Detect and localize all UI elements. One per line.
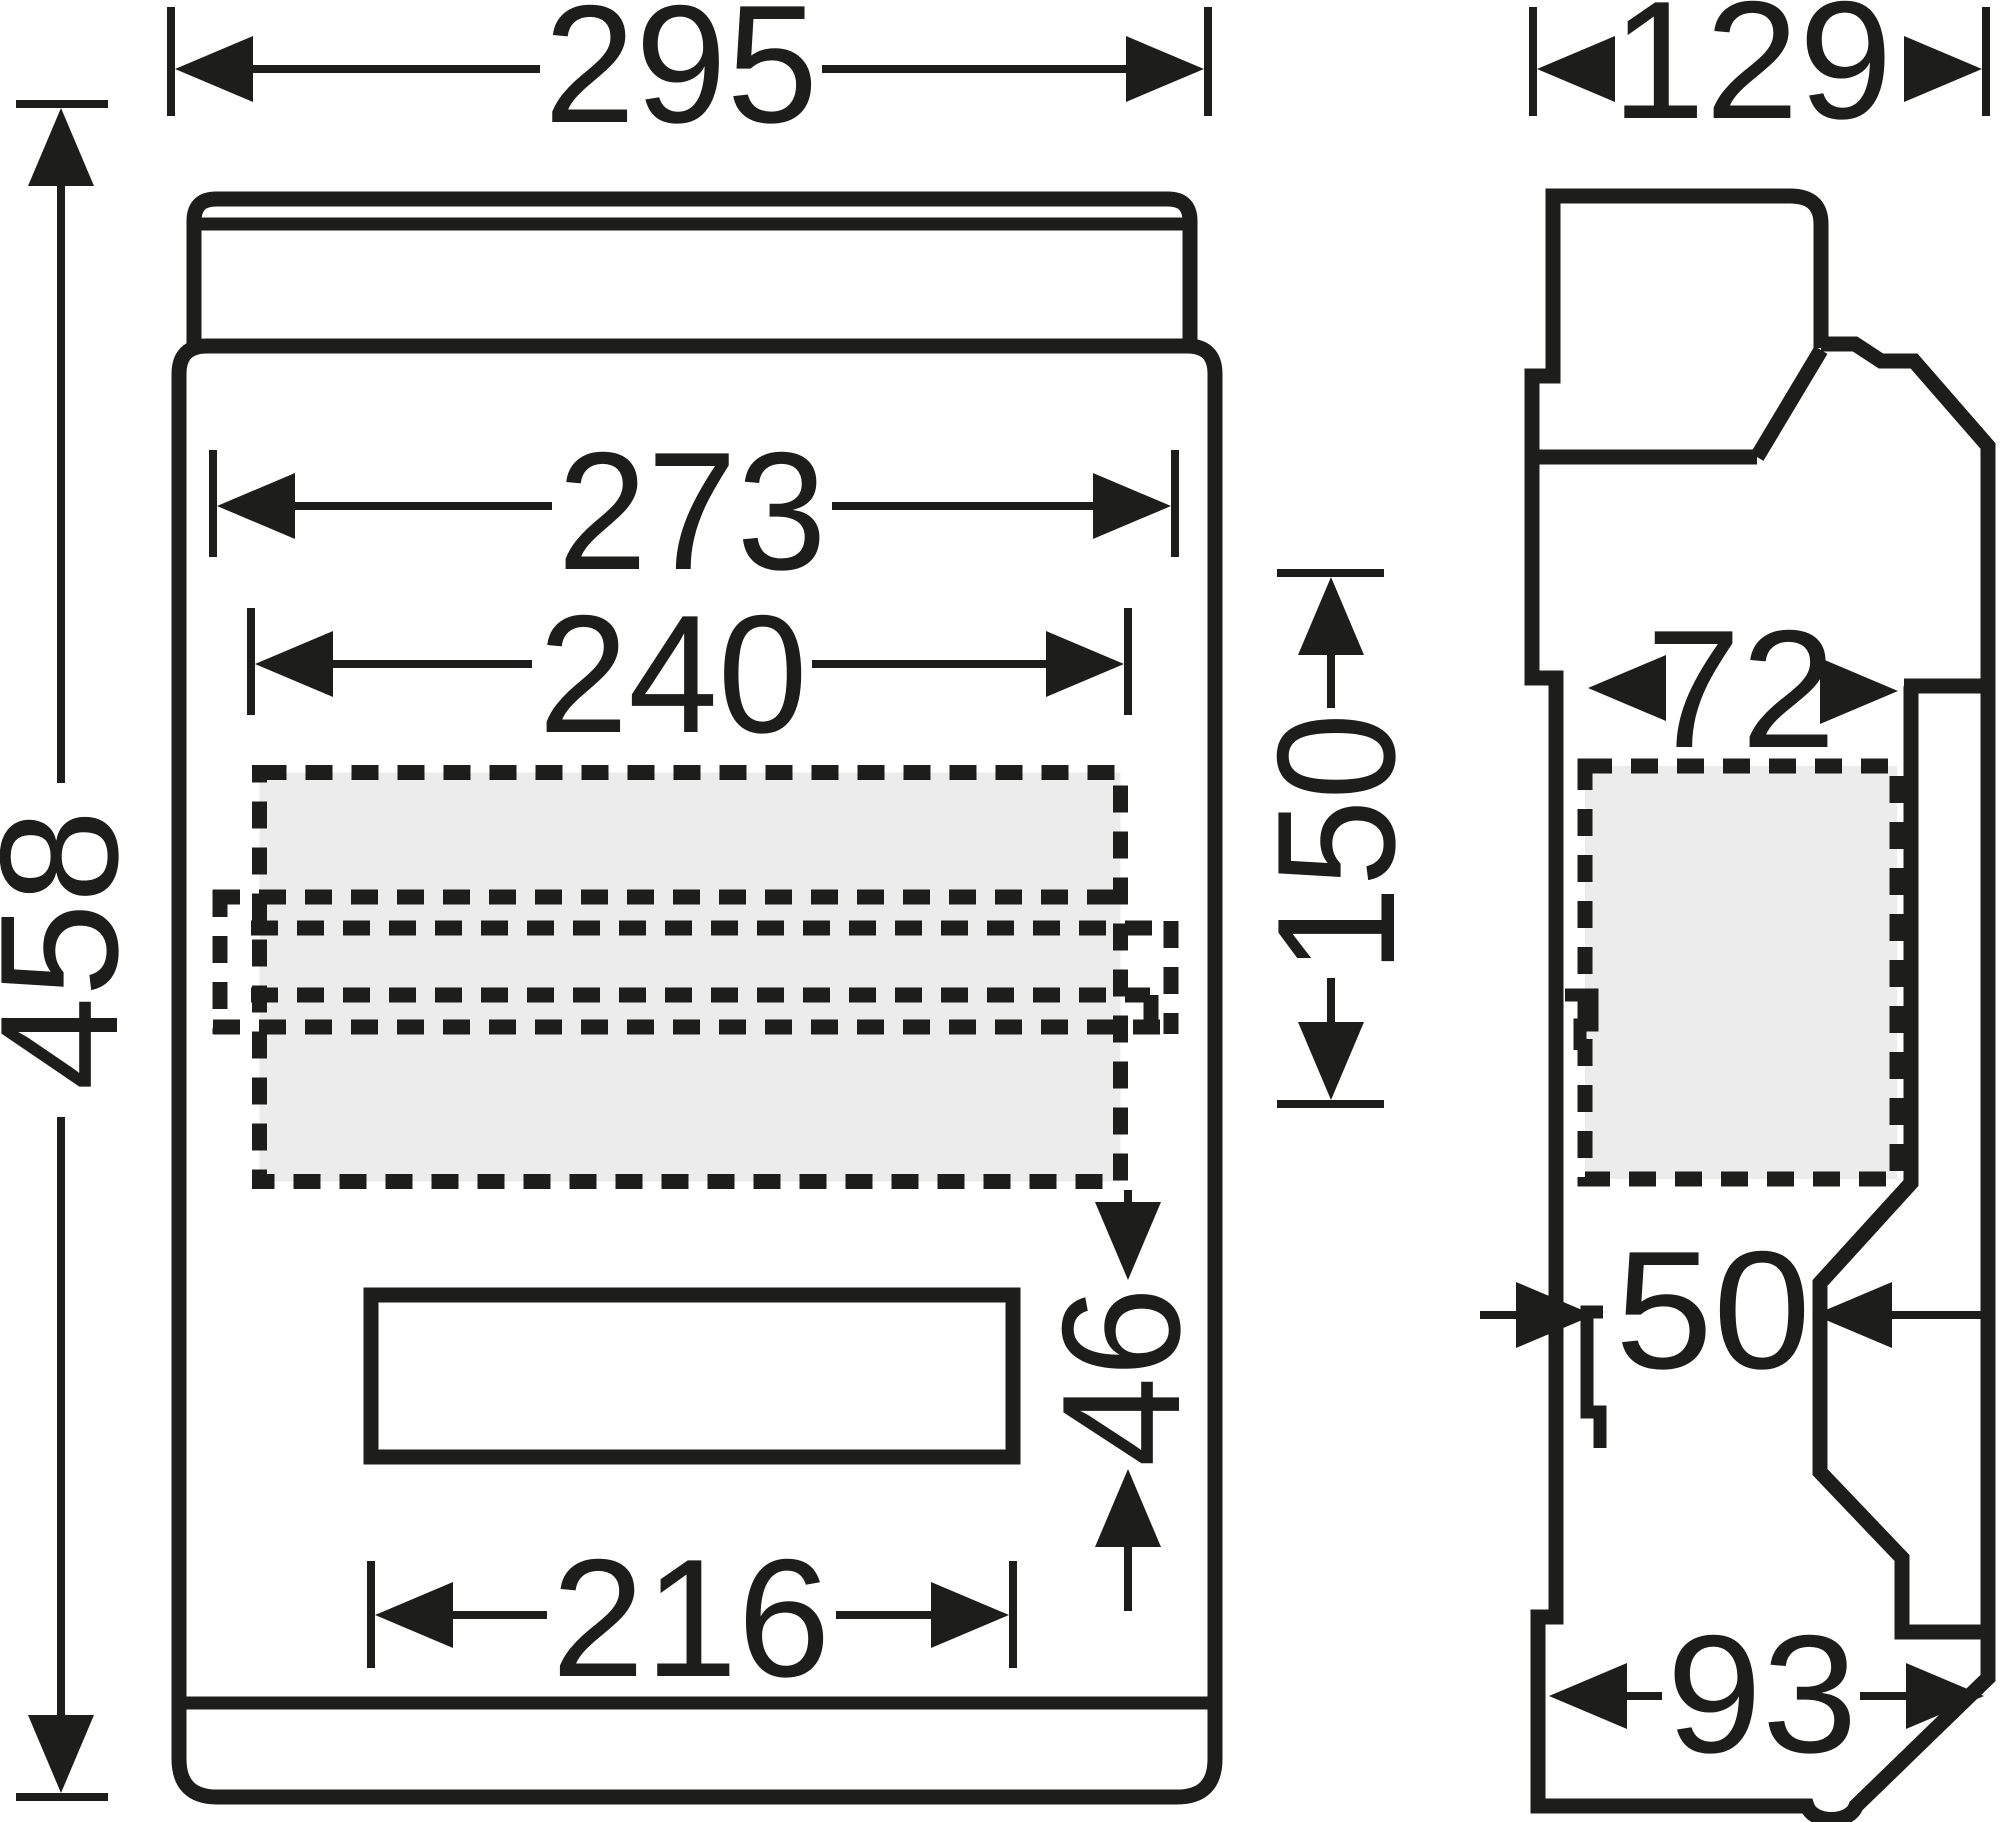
svg-text:216: 216 — [552, 1524, 831, 1712]
svg-text:46: 46 — [1027, 1287, 1215, 1467]
svg-text:295: 295 — [544, 0, 818, 158]
svg-text:273: 273 — [558, 417, 827, 605]
svg-text:240: 240 — [539, 580, 808, 768]
svg-text:50: 50 — [1615, 1216, 1811, 1404]
svg-text:93: 93 — [1667, 1600, 1858, 1788]
svg-text:129: 129 — [1612, 0, 1893, 154]
svg-text:150: 150 — [1242, 713, 1430, 973]
svg-text:72: 72 — [1646, 595, 1836, 783]
svg-text:458: 458 — [0, 810, 153, 1091]
